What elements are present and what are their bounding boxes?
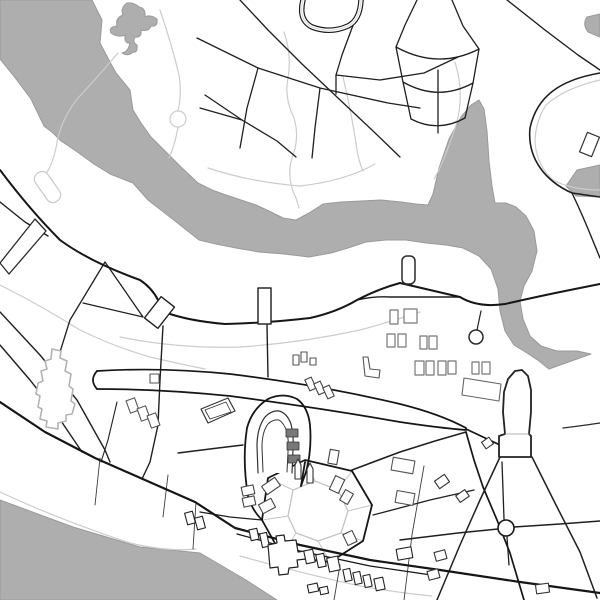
street bbox=[312, 88, 320, 158]
building bbox=[398, 334, 406, 347]
dock-building bbox=[0, 219, 46, 274]
building bbox=[404, 309, 417, 323]
culdesac-stem bbox=[477, 311, 481, 330]
street bbox=[178, 445, 243, 453]
building bbox=[293, 355, 299, 365]
pond bbox=[110, 3, 157, 55]
house bbox=[427, 569, 440, 581]
pier bbox=[258, 288, 271, 324]
resort-building bbox=[36, 349, 75, 429]
house bbox=[435, 474, 450, 488]
block-building bbox=[391, 457, 415, 474]
path-loop bbox=[32, 169, 64, 205]
street bbox=[502, 462, 504, 519]
building bbox=[301, 352, 307, 362]
shop bbox=[249, 528, 259, 540]
plaza-building bbox=[262, 477, 281, 494]
parcel-line bbox=[193, 502, 196, 549]
quay-edge bbox=[357, 297, 460, 300]
house bbox=[241, 485, 255, 496]
house bbox=[580, 132, 600, 156]
footpath bbox=[169, 127, 178, 158]
house bbox=[323, 385, 334, 399]
roundabout bbox=[498, 520, 514, 536]
street bbox=[105, 262, 143, 317]
bridge-deck bbox=[144, 297, 174, 329]
shed bbox=[319, 586, 328, 595]
street bbox=[197, 38, 420, 108]
building bbox=[310, 358, 316, 365]
street bbox=[240, 68, 258, 148]
parcel-line bbox=[95, 458, 100, 505]
building bbox=[415, 361, 424, 375]
plaza-building bbox=[343, 530, 357, 545]
plaza-building bbox=[329, 476, 344, 494]
street bbox=[507, 0, 600, 70]
shop bbox=[343, 568, 352, 581]
street bbox=[400, 529, 498, 540]
plaza-building bbox=[328, 449, 339, 464]
pond-small bbox=[585, 14, 600, 37]
footpath bbox=[0, 285, 205, 369]
street bbox=[267, 325, 268, 377]
shop bbox=[316, 553, 327, 567]
street bbox=[200, 108, 242, 120]
parcel-line bbox=[163, 475, 168, 517]
footpath bbox=[160, 10, 180, 110]
boulevard-cap bbox=[93, 371, 97, 389]
map-svg bbox=[0, 0, 600, 600]
building bbox=[420, 336, 427, 349]
building bbox=[482, 362, 490, 374]
plaza-spoke bbox=[262, 516, 288, 520]
riverbank-path bbox=[208, 164, 375, 186]
street bbox=[142, 326, 163, 479]
building bbox=[387, 334, 395, 347]
road-fragment bbox=[563, 423, 600, 428]
path-circle bbox=[170, 111, 186, 127]
map-canvas[interactable] bbox=[0, 0, 600, 600]
house bbox=[185, 511, 196, 525]
street bbox=[205, 95, 296, 157]
building bbox=[426, 361, 434, 375]
shop bbox=[363, 574, 372, 587]
obelisk bbox=[307, 463, 313, 483]
building bbox=[390, 310, 398, 324]
plaza-building bbox=[340, 490, 354, 505]
shop bbox=[374, 577, 385, 591]
shop bbox=[396, 547, 413, 560]
shed bbox=[307, 583, 318, 593]
sea bbox=[0, 500, 277, 600]
curved-block-road bbox=[396, 47, 479, 59]
building bbox=[429, 336, 437, 349]
house bbox=[434, 550, 447, 562]
street bbox=[336, 57, 458, 80]
street bbox=[101, 402, 117, 462]
house bbox=[195, 516, 206, 530]
house bbox=[242, 496, 256, 507]
street bbox=[532, 457, 597, 598]
plaza-spoke bbox=[348, 505, 372, 511]
pier bbox=[402, 256, 415, 284]
shop bbox=[327, 556, 341, 572]
building bbox=[438, 361, 446, 375]
parcel-line bbox=[404, 466, 424, 600]
house bbox=[482, 437, 494, 449]
culdesac-loop bbox=[469, 330, 483, 344]
plaza-building bbox=[258, 498, 275, 513]
street bbox=[572, 193, 600, 258]
curved-block-road bbox=[396, 0, 417, 119]
street bbox=[200, 512, 262, 520]
terrace-block bbox=[287, 442, 299, 450]
house bbox=[126, 398, 139, 413]
shop bbox=[304, 549, 316, 564]
street bbox=[514, 521, 600, 527]
building bbox=[472, 362, 479, 374]
curved-block-road bbox=[452, 0, 479, 118]
obelisk bbox=[295, 459, 301, 479]
river bbox=[0, 0, 591, 369]
block-building bbox=[395, 491, 415, 506]
footpath bbox=[343, 77, 363, 171]
house bbox=[535, 583, 549, 594]
layer-water bbox=[0, 0, 600, 600]
shop bbox=[353, 571, 362, 584]
house bbox=[150, 374, 159, 383]
building bbox=[448, 361, 456, 374]
terrace-block bbox=[286, 429, 298, 437]
l-shaped-building bbox=[363, 357, 380, 378]
long-building bbox=[462, 378, 501, 401]
tower-footprint bbox=[499, 370, 531, 457]
